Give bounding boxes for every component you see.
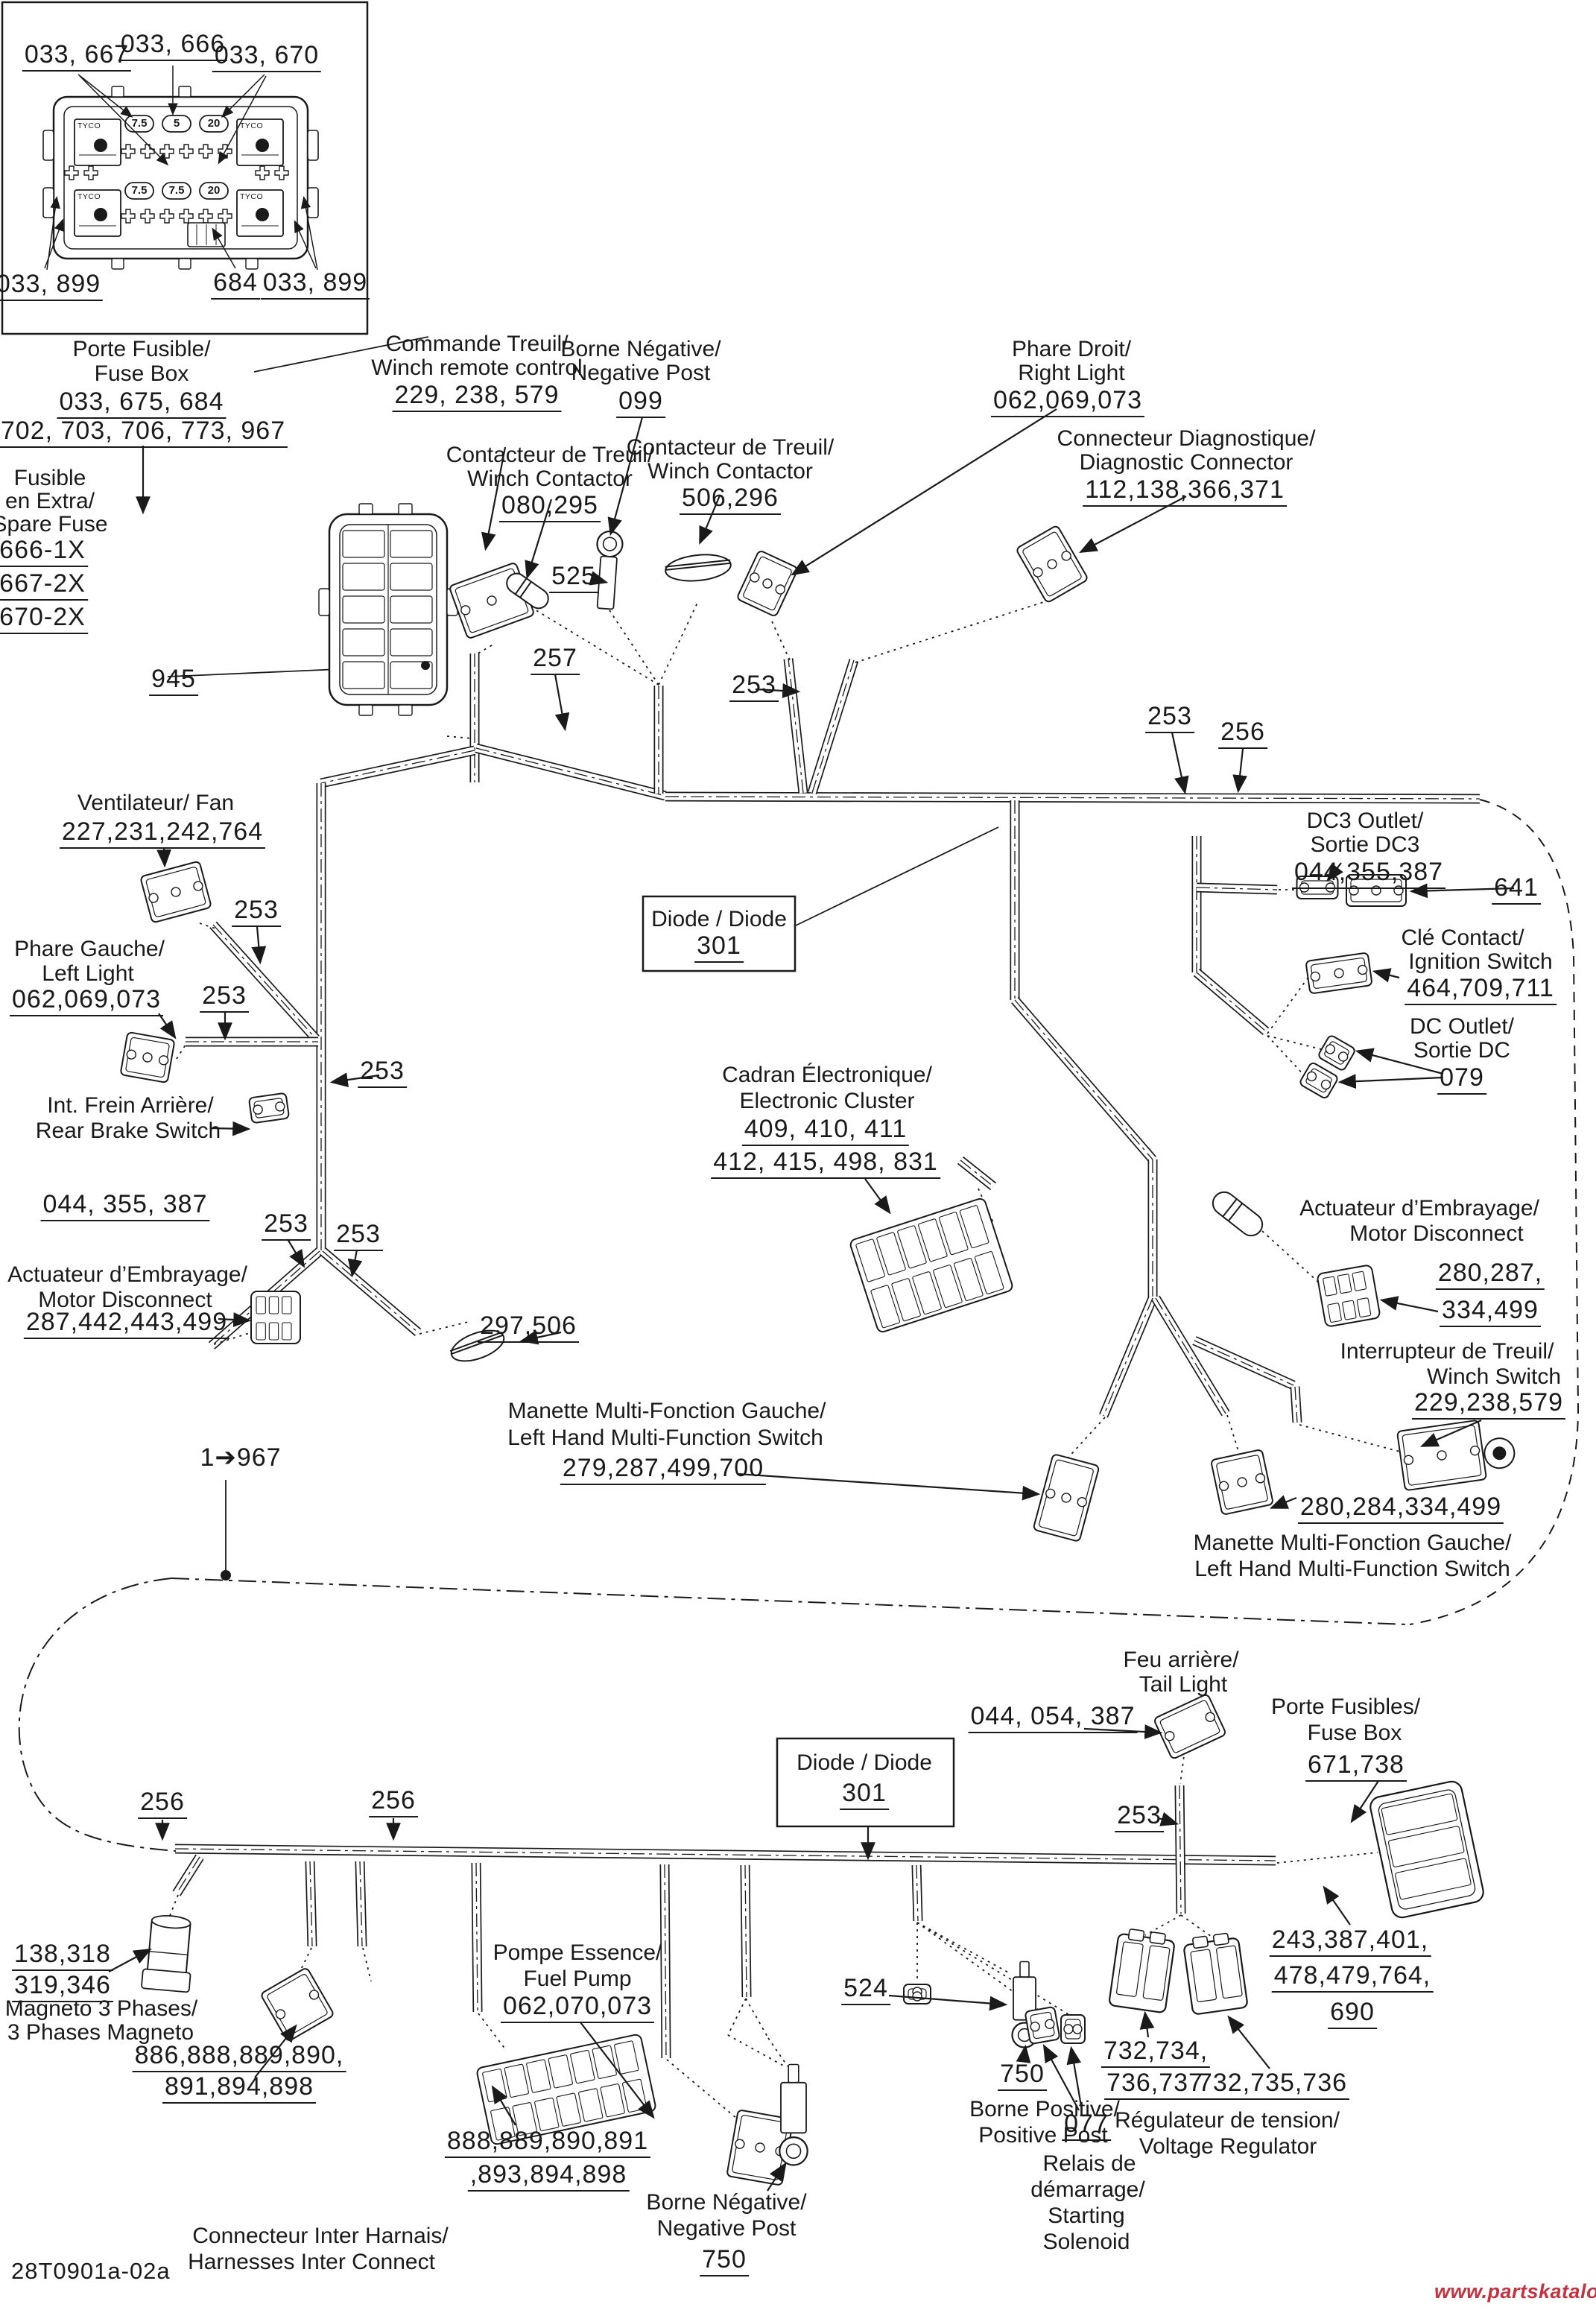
starting-solenoid-label: Relais de — [1042, 2152, 1136, 2176]
left-light-label-en: Left Light — [42, 962, 133, 986]
tail-light-label-en: Tail Light — [1139, 1673, 1227, 1697]
diagnostic-connector-icon — [1016, 525, 1088, 604]
dc-outlet-connector-b-icon — [1299, 1062, 1338, 1099]
dc-outlet-connector-a-icon — [1317, 1034, 1356, 1071]
fusebox-detail-ref: 033, 667 — [22, 41, 131, 72]
spare-fuse-parts: 667-2X — [0, 570, 88, 601]
negative-post-parts: 099 — [616, 387, 665, 418]
multifunction-left-en: Left Hand Multi-Function Switch — [507, 1426, 823, 1450]
fuse-box-parts: 702, 703, 706, 773, 967 — [0, 417, 288, 448]
voltage-regulator-parts: 732,735,736 — [1196, 2069, 1349, 2100]
rear-brake-label-fr: Int. Frein Arrière/ — [47, 1094, 213, 1118]
fusebox-detail-ref: 033, 666 — [118, 31, 227, 61]
multifunction-right-fr: Manette Multi-Fonction Gauche/ — [1194, 1531, 1512, 1555]
part-ref-257: 257 — [531, 645, 580, 675]
starting-solenoid-label: Starting — [1048, 2204, 1124, 2228]
multifunction-right-connector-icon — [1211, 1449, 1273, 1515]
relay-brand: TYCO — [240, 122, 263, 130]
rear-fusebox-label-en: Fuse Box — [1308, 1721, 1402, 1745]
fan-parts: 227,231,242,764 — [60, 818, 265, 849]
part-ref-077: 077 — [1062, 2110, 1111, 2141]
spare-fuse-label: Spare Fuse — [0, 513, 108, 537]
dc-outlet-parts: 079 — [1437, 1064, 1486, 1095]
starting-solenoid-label: démarrage/ — [1030, 2178, 1144, 2202]
winch-contactor-a-fr: Contacteur de Treuil/ — [446, 443, 653, 467]
multifunction-right-parts: 280,284,334,499 — [1298, 1493, 1504, 1524]
fuse-value: 20 — [208, 118, 221, 130]
fusebox-detail-ref: 033, 670 — [212, 42, 321, 72]
winch-switch-label-en: Winch Switch — [1427, 1365, 1561, 1389]
rear-fusebox-parts2: 478,479,764, — [1272, 1962, 1434, 1993]
voltage-regulator-a-icon — [1109, 1928, 1176, 2013]
tail-light-parts: 044, 054, 387 — [969, 1703, 1138, 1733]
magneto-label-fr: Magneto 3 Phases/ — [5, 1997, 198, 2021]
fuel-pump-parts: 062,070,073 — [501, 1993, 654, 2023]
diagnostic-label-en: Diagnostic Connector — [1080, 451, 1293, 475]
diode-box2-parts: 301 — [840, 1779, 889, 1810]
magneto-parts: 138,318 — [12, 1940, 113, 1971]
cluster-connector-icon — [849, 1197, 1014, 1333]
fuse-value: 7.5 — [169, 185, 185, 197]
left-light-label-fr: Phare Gauche/ — [14, 937, 165, 961]
motor-disconnect-right-connector-icon — [1317, 1265, 1380, 1327]
left-light-parts: 062,069,073 — [10, 986, 163, 1016]
fusebox-detail-ref: 033, 899 — [261, 269, 370, 300]
dc3-outlet-parts: 044,355,387 — [1292, 858, 1445, 889]
solenoid-terminal-a-icon — [1025, 2007, 1060, 2044]
multifunction-left-connector-icon — [1033, 1454, 1100, 1542]
negative-post2-label-fr: Borne Négative/ — [646, 2191, 806, 2215]
dc3-outlet-label-en: DC3 Outlet/ — [1307, 809, 1424, 833]
negative-post2-icon — [779, 2065, 807, 2165]
cluster-label-fr: Cadran Électronique/ — [722, 1063, 932, 1087]
motor-disconnect-right-parts: 334,499 — [1440, 1297, 1541, 1327]
wiring-diagram-page: 033, 667 033, 666 033, 670 033, 899 684 … — [0, 0, 1596, 2313]
left-light-connector-icon — [120, 1032, 174, 1083]
voltage-regulator-b-icon — [1182, 1931, 1247, 2014]
part-ref-256: 256 — [1218, 718, 1267, 749]
part-ref-1-967: 1➔967 — [200, 1444, 281, 1471]
part-ref-256: 256 — [138, 1788, 187, 1819]
fuel-pump-label-fr: Pompe Essence/ — [493, 1941, 662, 1965]
winch-remote-label-fr: Commande Treuil/ — [385, 332, 568, 356]
diode-box2-title: Diode / Diode — [797, 1751, 932, 1775]
part-ref-945: 945 — [149, 665, 198, 696]
motor-disconnect-right-en: Motor Disconnect — [1349, 1222, 1523, 1246]
multifunction-left-fr: Manette Multi-Fonction Gauche/ — [508, 1399, 826, 1423]
fuse-value: 7.5 — [132, 185, 148, 197]
fusebox-detail-drawing — [43, 66, 318, 270]
part-ref-524: 524 — [841, 1975, 890, 2005]
fuse-box-label-fr: Porte Fusible/ — [72, 338, 210, 361]
motor-disconnect-left-parts: 287,442,443,499 — [24, 1309, 229, 1339]
fuse-value: 5 — [174, 118, 180, 130]
winch-contactor-b-parts: 506,296 — [680, 484, 781, 515]
part-ref-253: 253 — [334, 1221, 383, 1251]
diode-box-title: Diode / Diode — [651, 908, 787, 931]
interconnect-b-parts: 888,889,890,891 — [445, 2127, 650, 2158]
right-light-label-en: Right Light — [1018, 361, 1124, 385]
starting-solenoid-label: Solenoid — [1043, 2230, 1130, 2254]
diagnostic-label-fr: Connecteur Diagnostique/ — [1057, 427, 1316, 451]
ignition-parts: 464,709,711 — [1405, 975, 1557, 1005]
voltage-regulator-label-en: Voltage Regulator — [1139, 2135, 1317, 2159]
part-ref-253: 253 — [200, 982, 249, 1013]
rear-fusebox-parts2: 690 — [1328, 1999, 1377, 2029]
part-ref-253: 253 — [1115, 1802, 1164, 1832]
motor-disconnect-left-fr: Actuateur d’Embrayage/ — [7, 1263, 247, 1287]
fan-connector-icon — [140, 861, 212, 923]
cluster-parts: 412, 415, 498, 831 — [711, 1148, 940, 1179]
part-ref-253: 253 — [232, 896, 281, 927]
rear-brake-label-en: Rear Brake Switch — [36, 1119, 221, 1143]
winch-switch-parts: 229,238,579 — [1412, 1389, 1565, 1420]
motor-disconnect-right-fr: Actuateur d’Embrayage/ — [1299, 1197, 1539, 1221]
voltage-regulator-label-fr: Régulateur de tension/ — [1115, 2109, 1340, 2133]
negative-post-label-fr: Borne Négative/ — [560, 338, 721, 361]
rear-brake-parts: 044, 355, 387 — [41, 1191, 210, 1221]
part-ref-525: 525 — [549, 563, 598, 593]
winch-contactor-a-en: Winch Contactor — [467, 467, 633, 491]
rear-fusebox-label-fr: Porte Fusibles/ — [1271, 1695, 1420, 1719]
dc-outlet-label-en: DC Outlet/ — [1410, 1015, 1514, 1039]
part-ref-253: 253 — [358, 1057, 407, 1088]
fan-label: Ventilateur/ Fan — [77, 791, 234, 815]
spare-fuse-label: Fusible — [14, 466, 86, 490]
fuse-value: 20 — [208, 185, 221, 197]
winch-switch-label-fr: Interrupteur de Treuil/ — [1340, 1340, 1554, 1364]
fuel-pump-label-en: Fuel Pump — [523, 1967, 631, 1991]
fuse-value: 7.5 — [132, 118, 148, 130]
interconnect-a-parts: 886,888,889,890, — [133, 2042, 346, 2072]
magneto-connector-icon — [142, 1914, 195, 1992]
rear-fusebox-parts2: 243,387,401, — [1270, 1926, 1431, 1957]
spare-fuse-parts: 666-1X — [0, 537, 88, 567]
tail-light-connector-icon — [1153, 1694, 1226, 1759]
winch-contactor-b-fr: Contacteur de Treuil/ — [627, 436, 834, 460]
detail-boxes — [2, 2, 954, 1826]
right-light-parts: 062,069,073 — [991, 387, 1144, 417]
multifunction-left-parts: 279,287,499,700 — [560, 1455, 766, 1485]
cluster-parts: 409, 410, 411 — [742, 1116, 909, 1146]
drawing-id: 28T0901a-02a — [11, 2258, 171, 2285]
rear-fusebox-icon — [1369, 1779, 1486, 1919]
arrow-lines — [109, 409, 1514, 2191]
part-ref-253: 253 — [262, 1210, 311, 1241]
positive-post-ref: 750 — [998, 2060, 1047, 2091]
fuse-box-label-en: Fuse Box — [95, 362, 189, 386]
negative-post2-ref: 750 — [700, 2246, 749, 2276]
ignition-label-en: Ignition Switch — [1408, 950, 1552, 974]
dc-outlet-label-fr: Sortie DC — [1413, 1039, 1510, 1063]
fusebox-detail-ref: 033, 899 — [0, 270, 103, 301]
part-ref-253: 253 — [1145, 703, 1194, 733]
cluster-label-en: Electronic Cluster — [739, 1089, 914, 1113]
negative-post2-label-en: Negative Post — [657, 2217, 797, 2241]
right-light-connector-icon — [737, 550, 799, 617]
voltage-regulator-parts: 736,737 — [1104, 2069, 1206, 2100]
ignition-label-fr: Clé Contact/ — [1401, 926, 1524, 950]
interconnect-label-fr: Connecteur Inter Harnais/ — [192, 2224, 449, 2248]
right-light-label-fr: Phare Droit/ — [1012, 338, 1131, 361]
multifunction-right-en: Left Hand Multi-Function Switch — [1194, 1557, 1510, 1581]
motor-disconnect-left-connector-icon — [251, 1291, 300, 1344]
spare-fuse-parts: 670-2X — [0, 604, 88, 634]
tail-light-label-fr: Feu arrière/ — [1123, 1648, 1238, 1672]
winch-contactor-a-parts: 080,295 — [499, 492, 601, 522]
watermark: www.partskatalog.ru — [1434, 2280, 1596, 2303]
negative-post-label-en: Negative Post — [571, 361, 711, 385]
interconnect-b-parts: ,893,894,898 — [468, 2161, 630, 2192]
rear-fusebox-parts: 671,738 — [1305, 1751, 1407, 1782]
motor-disconnect-right-parts: 280,287, — [1436, 1259, 1545, 1290]
spare-fuse-label: en Extra/ — [5, 490, 95, 513]
inline-terminal-524-icon — [904, 1984, 931, 2004]
relay-brand: TYCO — [240, 193, 263, 201]
winch-remote-connector-icon — [449, 563, 535, 639]
interconnect-a-parts: 891,894,898 — [162, 2073, 316, 2104]
part-ref-253: 253 — [729, 671, 779, 702]
spare-fusebox-icon — [319, 504, 457, 715]
diode-box-parts: 301 — [694, 932, 744, 963]
voltage-regulator-parts: 732,734, — [1101, 2037, 1210, 2068]
fusebox-detail-ref: 684 — [211, 269, 260, 300]
part-ref-297506: 297,506 — [478, 1312, 579, 1343]
solenoid-terminal-b-icon — [1061, 2015, 1085, 2043]
interconnect-label-en: Harnesses Inter Connect — [188, 2250, 435, 2274]
part-ref-256: 256 — [369, 1787, 418, 1817]
winch-remote-label-en: Winch remote control — [371, 356, 582, 380]
winch-remote-parts: 229, 238, 579 — [393, 382, 562, 412]
winch-contactor-b-terminal-icon — [664, 551, 732, 583]
diagnostic-parts: 112,138,366,371 — [1083, 476, 1287, 507]
rear-brake-connector-icon — [249, 1093, 289, 1124]
motor-disconnect-right-terminal-icon — [1209, 1188, 1267, 1240]
part-ref-641: 641 — [1492, 874, 1541, 905]
relay-brand: TYCO — [77, 122, 101, 130]
winch-contactor-b-en: Winch Contactor — [647, 460, 813, 484]
fuse-box-parts: 033, 675, 684 — [57, 388, 227, 419]
relay-brand: TYCO — [77, 193, 101, 201]
winch-switch-connector-icon — [1397, 1416, 1518, 1490]
interconnect-a-connector-icon — [260, 1967, 334, 2042]
dc3-outlet-label-fr: Sortie DC3 — [1311, 833, 1420, 857]
ignition-connector-icon — [1305, 952, 1372, 993]
